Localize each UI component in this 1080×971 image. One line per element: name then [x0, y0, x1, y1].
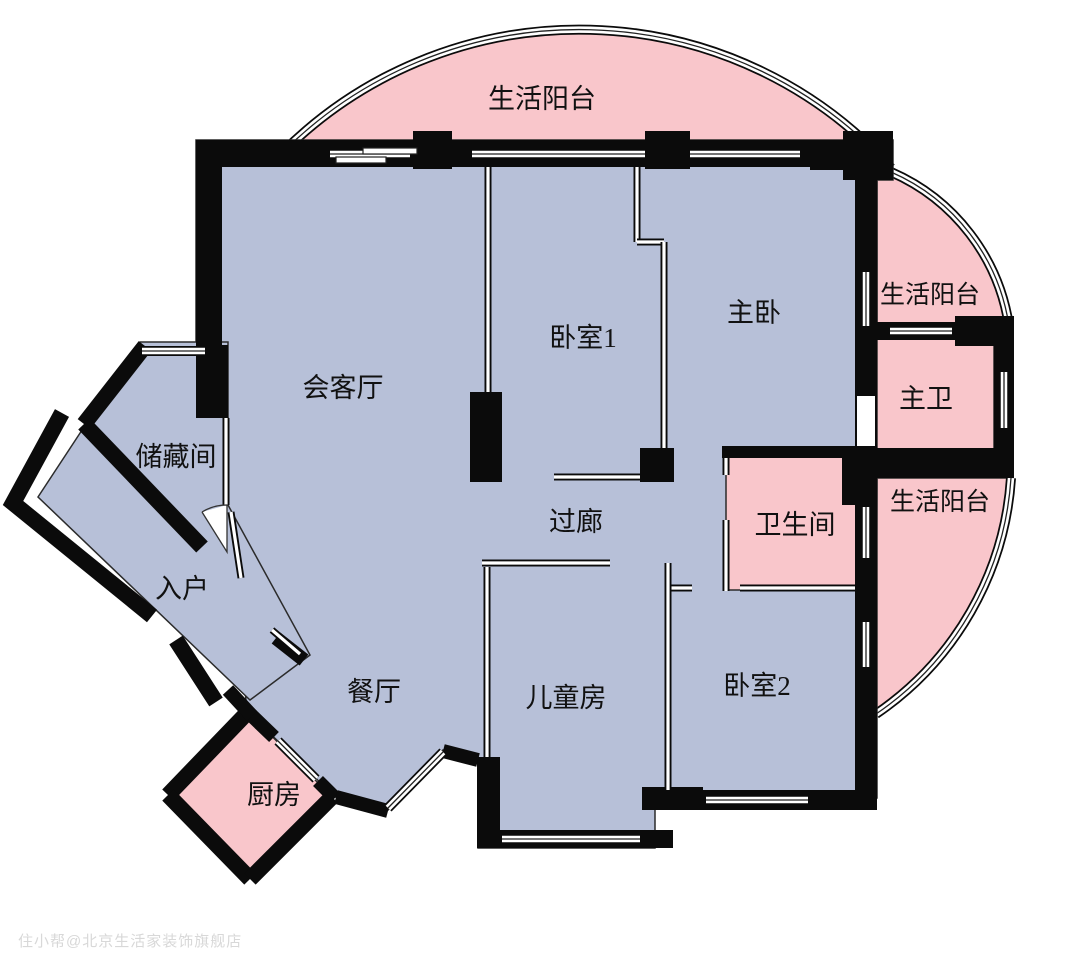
- door-opening: [857, 396, 875, 446]
- wall: [443, 751, 478, 760]
- wall-column: [413, 131, 452, 169]
- floor-plan: 生活阳台 会客厅 卧室1 主卧 生活阳台 主卫 生活阳台 储藏间 过廊 卫生间 …: [0, 0, 1080, 971]
- watermark: 住小帮@北京生活家装饰旗舰店: [18, 933, 242, 950]
- label-master-bedroom: 主卧: [727, 298, 781, 328]
- label-corridor: 过廊: [549, 507, 603, 537]
- label-kitchen: 厨房: [247, 780, 301, 810]
- label-master-bathroom: 主卫: [899, 384, 953, 414]
- label-kids-room: 儿童房: [526, 683, 607, 713]
- sliding-window-symbol: [336, 157, 386, 163]
- label-living-room: 会客厅: [303, 373, 384, 403]
- wall: [470, 392, 502, 482]
- sliding-window-symbol: [363, 148, 417, 154]
- label-storage-room: 储藏间: [136, 442, 217, 472]
- label-dining-room: 餐厅: [347, 677, 401, 707]
- wall-column: [645, 131, 690, 169]
- label-bedroom1: 卧室1: [549, 323, 617, 353]
- wall: [722, 446, 857, 458]
- label-balcony-top: 生活阳台: [488, 84, 596, 114]
- floor-plan-canvas: 生活阳台 会客厅 卧室1 主卧 生活阳台 主卫 生活阳台 储藏间 过廊 卫生间 …: [0, 0, 1080, 971]
- label-balcony-right-upper: 生活阳台: [880, 281, 980, 309]
- label-bedroom2: 卧室2: [723, 671, 791, 701]
- wall: [196, 140, 222, 350]
- label-entry: 入户: [155, 574, 209, 604]
- label-bathroom: 卫生间: [755, 510, 836, 540]
- label-balcony-right-lower: 生活阳台: [890, 488, 990, 516]
- wall: [640, 448, 674, 482]
